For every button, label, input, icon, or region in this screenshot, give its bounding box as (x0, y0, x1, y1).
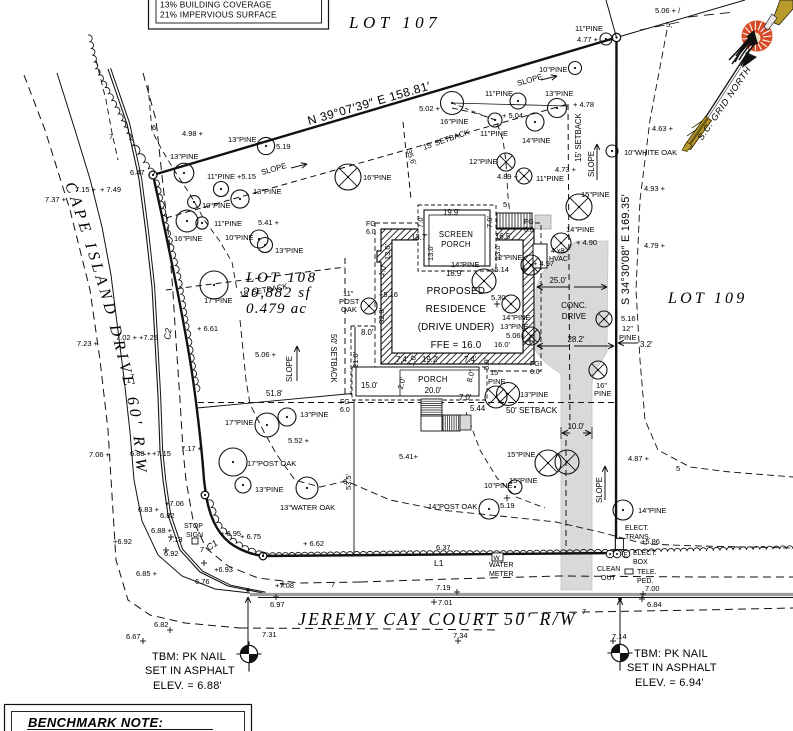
svg-text:FFE = 16.0: FFE = 16.0 (431, 340, 482, 351)
svg-text:CLEAN: CLEAN (597, 566, 620, 573)
svg-text:6.67: 6.67 (126, 632, 141, 641)
svg-text:+ 6.95: + 6.95 (220, 529, 241, 538)
svg-text:WATER: WATER (489, 562, 514, 569)
svg-text:L1: L1 (434, 558, 444, 568)
svg-text:5.06 +: 5.06 + (255, 350, 277, 359)
svg-text:JEREMY CAY COURT 50′ R/W: JEREMY CAY COURT 50′ R/W (298, 609, 577, 629)
svg-text:6.37: 6.37 (436, 543, 451, 552)
svg-text:5.52 +: 5.52 + (288, 436, 310, 445)
svg-text:PINE: PINE (594, 389, 612, 398)
svg-text:11"PINE: 11"PINE (536, 174, 564, 183)
svg-text:15.0': 15.0' (361, 381, 378, 390)
svg-text:7.0': 7.0' (416, 216, 425, 228)
svg-text:+ 6.61: + 6.61 (197, 324, 218, 333)
svg-text:14"POST OAK: 14"POST OAK (428, 502, 477, 511)
svg-text:5.30: 5.30 (491, 293, 506, 302)
svg-text:4.93 +: 4.93 + (644, 184, 666, 193)
svg-text:4.77 +: 4.77 + (577, 35, 599, 44)
svg-text:TELE.: TELE. (637, 569, 657, 576)
svg-text:FG: FG (366, 221, 376, 228)
svg-text:21% IMPERVIOUS SURFACE: 21% IMPERVIOUS SURFACE (160, 10, 277, 20)
svg-text:LOT 108: LOT 108 (245, 270, 318, 286)
svg-text:6.83 +: 6.83 + (138, 505, 160, 514)
svg-text:5.06: 5.06 (506, 331, 521, 340)
svg-text:7.34: 7.34 (453, 631, 468, 640)
svg-text:SET IN ASPHALT: SET IN ASPHALT (145, 665, 235, 677)
svg-text:6.82: 6.82 (154, 620, 169, 629)
svg-text:13"PINE: 13"PINE (275, 246, 304, 255)
svg-text:13"PINE: 13"PINE (170, 152, 199, 161)
svg-text:11"PINE: 11"PINE (480, 129, 508, 138)
svg-text:8.0': 8.0' (361, 328, 374, 337)
svg-text:12"PINE: 12"PINE (494, 253, 523, 262)
svg-text:7.4': 7.4' (464, 355, 477, 364)
svg-text:10.0': 10.0' (567, 422, 585, 431)
svg-text:5,: 5, (666, 20, 672, 29)
svg-text:+ 7.49: + 7.49 (100, 185, 121, 194)
svg-text:7.37 +: 7.37 + (45, 195, 67, 204)
svg-text:7.0': 7.0' (485, 216, 494, 228)
svg-text:13"PINE: 13"PINE (253, 187, 282, 196)
svg-text:28.2': 28.2' (567, 335, 585, 344)
svg-text:7.01: 7.01 (438, 598, 453, 607)
svg-text:13"PINE: 13"PINE (500, 322, 529, 331)
svg-text:FG: FG (340, 399, 350, 406)
svg-text:14"PINE: 14"PINE (502, 313, 531, 322)
svg-text:DRIVE: DRIVE (562, 312, 586, 321)
svg-text:18.9': 18.9' (446, 269, 463, 278)
svg-text:13.0': 13.0' (426, 244, 435, 261)
svg-text:+ 4.90: + 4.90 (576, 238, 597, 247)
svg-text:13.0': 13.0' (383, 243, 392, 260)
svg-text:6.85 +: 6.85 + (136, 569, 158, 578)
svg-text:6.0: 6.0 (530, 369, 540, 376)
svg-text:7.17 +: 7.17 + (181, 444, 203, 453)
svg-text:7.13: 7.13 (168, 535, 183, 544)
svg-text:RESIDENCE: RESIDENCE (426, 304, 487, 315)
svg-text:CONC.: CONC. (561, 301, 587, 310)
svg-text:ELECT.: ELECT. (625, 525, 649, 532)
svg-text:+6.93: +6.93 (214, 565, 233, 574)
svg-text:7.0': 7.0' (459, 393, 472, 402)
svg-text:BOX: BOX (633, 559, 648, 566)
svg-text:5.06 + /: 5.06 + / (655, 6, 681, 15)
svg-text:20.0': 20.0' (425, 386, 442, 395)
svg-text:5.41+: 5.41+ (399, 452, 419, 461)
svg-text:PINE: PINE (619, 333, 637, 342)
svg-text:10"WHITE OAK: 10"WHITE OAK (624, 148, 677, 157)
svg-text:PINE: PINE (488, 377, 506, 386)
svg-text:15"PINE: 15"PINE (507, 450, 536, 459)
svg-text:11"PINE: 11"PINE (575, 24, 603, 33)
svg-text:W: W (494, 555, 501, 562)
svg-text:SLOPE: SLOPE (285, 356, 294, 382)
svg-text:PORCH: PORCH (441, 240, 471, 249)
svg-text:7.06 +: 7.06 + (89, 450, 111, 459)
svg-text:E: E (624, 553, 628, 559)
svg-text:14"PINE: 14"PINE (566, 225, 595, 234)
svg-text:16"PINE: 16"PINE (440, 117, 469, 126)
svg-text:6.97: 6.97 (270, 600, 285, 609)
svg-text:FG: FG (530, 361, 540, 368)
svg-text:5: 5 (676, 464, 680, 473)
svg-text:13"PINE: 13"PINE (255, 485, 284, 494)
svg-text:6.47: 6.47 (130, 168, 145, 177)
svg-text:+ 5.04: + 5.04 (502, 111, 523, 120)
svg-text:15': 15' (490, 368, 500, 377)
svg-text:+ 4.97: + 4.97 (533, 259, 554, 268)
svg-text:14"PINE: 14"PINE (451, 260, 480, 269)
svg-text:7.23 +: 7.23 + (77, 339, 99, 348)
svg-text:PROPOSED: PROPOSED (427, 286, 486, 297)
svg-text:+ 4.78: + 4.78 (573, 100, 594, 109)
svg-text:+7.15: +7.15 (152, 449, 171, 458)
svg-text:16"PINE: 16"PINE (363, 173, 392, 182)
svg-text:7.14: 7.14 (612, 632, 627, 641)
svg-text:6.88 +: 6.88 + (151, 526, 173, 535)
svg-text:14"PINE: 14"PINE (522, 136, 551, 145)
svg-text:20,882 sf: 20,882 sf (242, 285, 312, 301)
svg-text:+ 6.75: + 6.75 (240, 532, 261, 541)
svg-text:5: 5 (503, 200, 507, 209)
svg-text:21.0': 21.0' (351, 351, 360, 368)
svg-text:6.0: 6.0 (340, 407, 350, 414)
svg-text:13"PINE: 13"PINE (545, 89, 574, 98)
svg-text:METER: METER (489, 571, 514, 578)
svg-text:6.82: 6.82 (160, 511, 175, 520)
svg-text:13"PINE: 13"PINE (228, 135, 257, 144)
svg-text:25.0': 25.0' (549, 276, 567, 285)
svg-text:13% BUILDING COVERAGE: 13% BUILDING COVERAGE (160, 0, 272, 10)
svg-text:13.7': 13.7' (411, 233, 428, 242)
svg-text:51.8': 51.8' (266, 389, 283, 398)
svg-text:TBM: PK NAIL: TBM: PK NAIL (152, 651, 226, 663)
svg-text:4.87 +: 4.87 + (628, 454, 650, 463)
svg-text:16.5': 16.5' (495, 232, 512, 241)
svg-text:17"PINE: 17"PINE (204, 296, 233, 305)
svg-text:SCREEN: SCREEN (439, 230, 473, 239)
svg-text:+6.92: +6.92 (113, 537, 132, 546)
svg-text:13"WATER OAK: 13"WATER OAK (280, 503, 335, 512)
svg-text:50' SETBACK: 50' SETBACK (506, 406, 558, 415)
svg-text:16"PINE: 16"PINE (174, 234, 203, 243)
svg-text:17"POST OAK: 17"POST OAK (247, 459, 296, 468)
svg-text:10"PINE: 10"PINE (225, 233, 254, 242)
svg-text:19.9': 19.9' (443, 208, 460, 217)
svg-text:OAK: OAK (341, 305, 357, 314)
svg-text:11"PINE +5.15: 11"PINE +5.15 (207, 172, 256, 181)
svg-text:7.31: 7.31 (262, 630, 277, 639)
svg-text:19.2': 19.2' (422, 355, 439, 364)
svg-text:12": 12" (622, 324, 633, 333)
svg-text:TBM: PK NAIL: TBM: PK NAIL (634, 648, 708, 660)
svg-text:PORCH: PORCH (418, 375, 448, 384)
svg-text:50' SETBACK: 50' SETBACK (329, 334, 338, 384)
svg-text:SLOPE: SLOPE (587, 151, 596, 177)
svg-text:+5.16: +5.16 (379, 290, 398, 299)
svg-text:10"PINE: 10"PINE (202, 201, 231, 210)
svg-text:5.44: 5.44 (470, 404, 486, 413)
svg-text:13"PINE: 13"PINE (300, 410, 329, 419)
svg-text:+7.08: +7.08 (275, 581, 294, 590)
svg-text:ELEV. = 6.88': ELEV. = 6.88' (153, 680, 222, 692)
svg-text:15"PINE: 15"PINE (509, 476, 538, 485)
svg-text:0.479 ac: 0.479 ac (246, 301, 307, 317)
svg-text:3.2': 3.2' (640, 340, 653, 349)
svg-text:15"PINE: 15"PINE (581, 190, 610, 199)
svg-text:6: 6 (343, 477, 347, 486)
svg-text:17"PINE: 17"PINE (225, 418, 254, 427)
svg-text:4.89 +: 4.89 + (497, 172, 519, 181)
svg-text:SLOPE: SLOPE (595, 477, 604, 503)
svg-text:TRANS.: TRANS. (625, 534, 651, 541)
svg-text:4.98 +: 4.98 + (182, 129, 204, 138)
svg-text:7.19: 7.19 (436, 583, 451, 592)
svg-text:13"PINE: 13"PINE (520, 390, 549, 399)
svg-text:7: 7 (200, 545, 204, 554)
svg-text:SET IN ASPHALT: SET IN ASPHALT (627, 662, 717, 674)
svg-text:6.0: 6.0 (366, 229, 376, 236)
svg-text:16.0': 16.0' (494, 340, 511, 349)
svg-text:32.0': 32.0' (377, 307, 386, 324)
svg-text:+7.06: +7.06 (165, 499, 184, 508)
svg-text:OUT: OUT (601, 575, 617, 582)
svg-text:+ 6.62: + 6.62 (303, 539, 324, 548)
svg-text:SIGN: SIGN (186, 532, 203, 539)
svg-text:+7.25: +7.25 (139, 333, 158, 342)
svg-text:6.84: 6.84 (647, 600, 662, 609)
svg-text:+5.14: +5.14 (490, 265, 509, 274)
svg-text:11"PINE: 11"PINE (214, 219, 242, 228)
svg-text:LOT 109: LOT 109 (667, 290, 747, 307)
svg-text:15' SETBACK: 15' SETBACK (574, 112, 583, 162)
svg-text:5.16: 5.16 (621, 314, 636, 323)
svg-text:LOT 107: LOT 107 (348, 13, 441, 32)
svg-text:FG: FG (524, 219, 534, 226)
svg-text:PED.: PED. (637, 578, 653, 585)
svg-text:10"PINE: 10"PINE (539, 65, 568, 74)
svg-text:ELECT.: ELECT. (633, 550, 657, 557)
svg-text:7: 7 (109, 132, 113, 141)
svg-text:14"PINE: 14"PINE (638, 506, 667, 515)
svg-text:12"PINE: 12"PINE (469, 157, 498, 166)
svg-text:STOP: STOP (184, 523, 203, 530)
svg-text:ELEV. = 6.94': ELEV. = 6.94' (635, 677, 704, 689)
svg-text:5.41 +: 5.41 + (258, 218, 280, 227)
svg-text:4.63 +: 4.63 + (652, 124, 674, 133)
svg-text:5.19: 5.19 (500, 501, 515, 510)
svg-text:S 34°30′08″ E 169.35′: S 34°30′08″ E 169.35′ (620, 194, 632, 305)
svg-text:6: 6 (152, 123, 156, 132)
svg-text:(DRIVE UNDER): (DRIVE UNDER) (418, 322, 495, 333)
svg-text:11"PINE: 11"PINE (485, 89, 513, 98)
svg-text:10"PINE: 10"PINE (484, 481, 513, 490)
svg-text:5.02 +: 5.02 + (419, 104, 441, 113)
svg-text:7: 7 (331, 580, 335, 589)
svg-text:4.73 +: 4.73 + (555, 165, 577, 174)
svg-text:7.00: 7.00 (645, 584, 660, 593)
svg-text:6.76: 6.76 (195, 577, 210, 586)
svg-text:5.19: 5.19 (276, 142, 291, 151)
svg-text:C2: C2 (162, 327, 174, 340)
svg-text:7: 7 (582, 607, 586, 616)
svg-text:BENCHMARK NOTE:: BENCHMARK NOTE: (28, 715, 163, 730)
svg-text:4.79 +: 4.79 + (644, 241, 666, 250)
svg-text:6.0: 6.0 (524, 227, 534, 234)
